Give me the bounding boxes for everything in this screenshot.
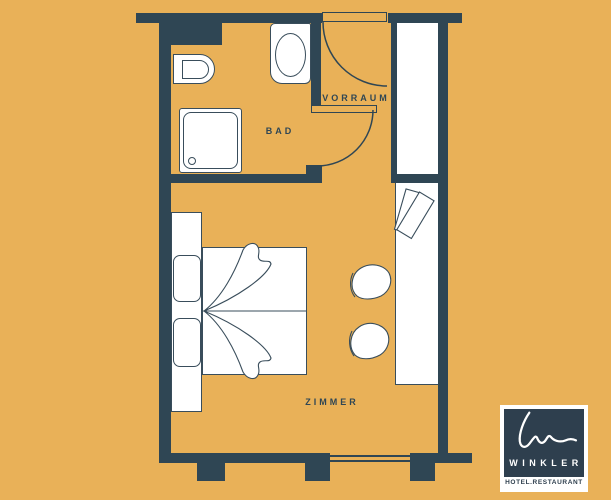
wall-bottom-left bbox=[159, 453, 330, 463]
sink-basin bbox=[275, 33, 306, 77]
column-stub bbox=[197, 463, 225, 481]
wall-vorraum-south bbox=[391, 174, 448, 183]
shower-drain bbox=[188, 157, 196, 165]
double-bed bbox=[202, 247, 307, 375]
wall-bathroom-east-block bbox=[306, 165, 322, 183]
logo-brand-text: WINKLER bbox=[504, 458, 584, 469]
installation-shaft bbox=[171, 23, 222, 45]
window-line-outer bbox=[330, 455, 410, 457]
window-line-inner bbox=[330, 460, 410, 462]
hotel-logo: WINKLER HOTEL.RESTAURANT bbox=[500, 405, 588, 492]
chair bbox=[350, 323, 389, 358]
room-label-bad: BAD bbox=[245, 126, 315, 136]
logo-tagline-text: HOTEL.RESTAURANT bbox=[504, 477, 584, 488]
desk-sideboard bbox=[395, 183, 438, 385]
winkler-script-icon bbox=[504, 411, 584, 449]
pillow bbox=[173, 255, 201, 302]
column-stub bbox=[305, 463, 330, 481]
bathroom-door-leaf bbox=[311, 105, 377, 113]
room-label-zimmer: ZIMMER bbox=[292, 397, 372, 407]
wall-bottom-right bbox=[410, 453, 472, 463]
wall-left bbox=[159, 23, 171, 453]
column-stub bbox=[410, 463, 435, 481]
bed-headboard bbox=[171, 212, 202, 412]
entrance-door-arc bbox=[323, 22, 387, 86]
chair bbox=[351, 265, 391, 299]
pillow bbox=[173, 318, 201, 367]
wall-bathroom-south bbox=[159, 174, 322, 183]
entrance-door-leaf bbox=[322, 12, 387, 22]
wall-top-right bbox=[388, 13, 462, 23]
toilet-bowl bbox=[182, 60, 209, 79]
floor-plan: BAD VORRAUM ZIMMER bbox=[0, 0, 611, 500]
wall-top-left bbox=[136, 13, 322, 23]
hotel-logo-inner: WINKLER HOTEL.RESTAURANT bbox=[504, 409, 584, 488]
bathroom-door-arc bbox=[317, 110, 373, 166]
wall-right bbox=[438, 23, 448, 453]
closet bbox=[397, 23, 438, 174]
room-label-vorraum: VORRAUM bbox=[316, 93, 396, 103]
